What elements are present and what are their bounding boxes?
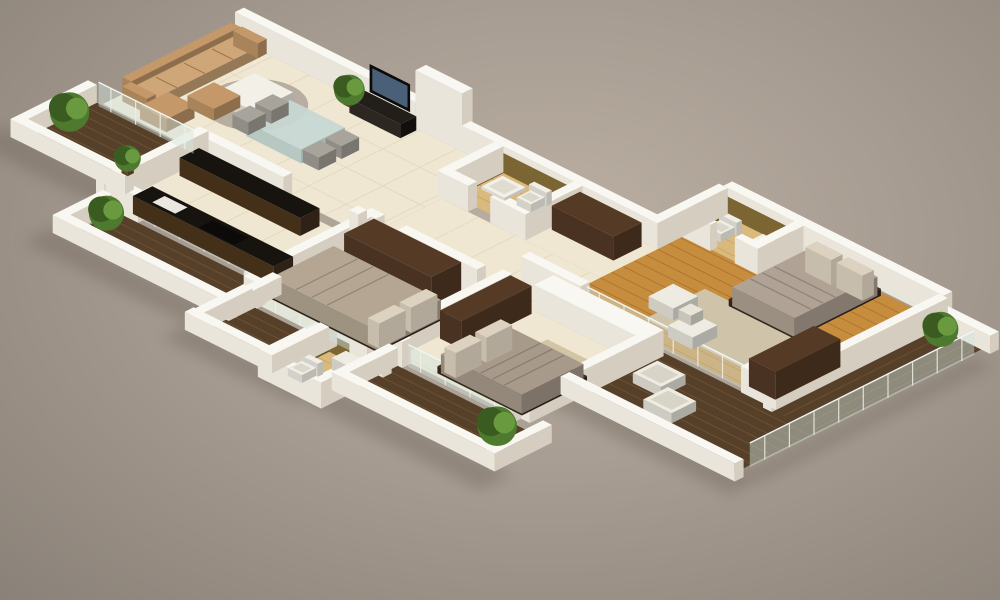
scene-background xyxy=(0,0,1000,600)
floor-plan-render xyxy=(0,0,1000,600)
